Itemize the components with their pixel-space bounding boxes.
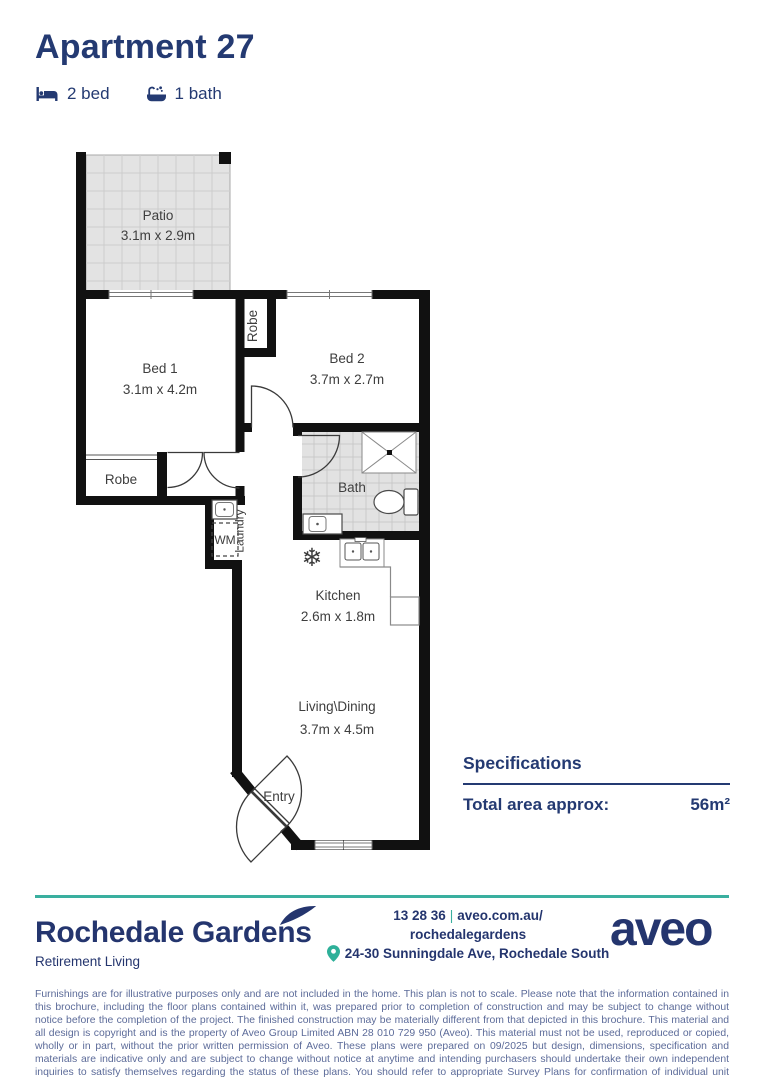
patio-corner-post — [219, 152, 231, 164]
robe-bottom-label: Robe — [105, 472, 137, 487]
living-label: Living\Dining — [298, 699, 375, 714]
toilet — [374, 489, 418, 515]
total-area-row: Total area approx: 56m² — [463, 795, 730, 815]
bed2-dims: 3.7m x 2.7m — [310, 372, 384, 387]
patio-dims: 3.1m x 2.9m — [121, 228, 195, 243]
community-tagline: Retirement Living — [35, 954, 312, 969]
bed2-door — [252, 386, 294, 428]
floorplan: ❄ Patio 3.1m x 2.9m Bed 1 3.1m x 4.2m Be… — [0, 0, 764, 880]
bed1-dims: 3.1m x 4.2m — [123, 382, 197, 397]
address-line: 24-30 Sunningdale Ave, Rochedale South — [318, 944, 618, 963]
bed1-door-left — [168, 453, 203, 488]
address-text: 24-30 Sunningdale Ave, Rochedale South — [345, 944, 610, 963]
phone-number: 13 28 36 — [393, 908, 446, 923]
bed1-door-right — [204, 453, 240, 489]
fridge-snowflake-icon: ❄ — [302, 544, 323, 572]
entry-label: Entry — [263, 789, 295, 804]
window — [315, 841, 372, 850]
specifications-panel: Specifications Total area approx: 56m² — [463, 753, 730, 815]
contact-block: 13 28 36|aveo.com.au/ rochedalegardens 2… — [318, 906, 618, 963]
kitchen-sink — [340, 538, 384, 568]
patio-label: Patio — [143, 208, 174, 223]
leaf-icon — [277, 904, 319, 926]
website-url-part1: aveo.com.au/ — [457, 908, 543, 923]
contact-line-1: 13 28 36|aveo.com.au/ — [318, 906, 618, 925]
wm-label: WM — [214, 533, 235, 547]
shower — [362, 432, 416, 473]
window — [109, 290, 193, 299]
brochure-page: Apartment 27 2 bed 1 bath — [0, 0, 764, 1080]
basin — [303, 514, 342, 534]
separator: | — [446, 908, 458, 923]
robe-closet-front — [86, 455, 157, 460]
kitchen-label: Kitchen — [315, 588, 360, 603]
specifications-heading: Specifications — [463, 753, 730, 785]
bed1-label: Bed 1 — [142, 361, 177, 376]
living-dims: 3.7m x 4.5m — [300, 722, 374, 737]
bed2-label: Bed 2 — [329, 351, 364, 366]
total-area-label: Total area approx: — [463, 795, 609, 815]
total-area-value: 56m² — [690, 795, 730, 815]
bath-label: Bath — [338, 480, 366, 495]
disclaimer-text: Furnishings are for illustrative purpose… — [35, 988, 729, 1080]
aveo-logo: aveo — [610, 902, 711, 957]
robe-top-label: Robe — [245, 310, 260, 342]
footer-divider — [35, 895, 729, 898]
kitchen-dims: 2.6m x 1.8m — [301, 609, 375, 624]
location-pin-icon — [327, 945, 340, 962]
window — [287, 290, 372, 299]
website-url-part2: rochedalegardens — [318, 925, 618, 944]
community-logo: Rochedale Gardens Retirement Living — [35, 916, 312, 969]
community-name: Rochedale Gardens — [35, 916, 312, 950]
